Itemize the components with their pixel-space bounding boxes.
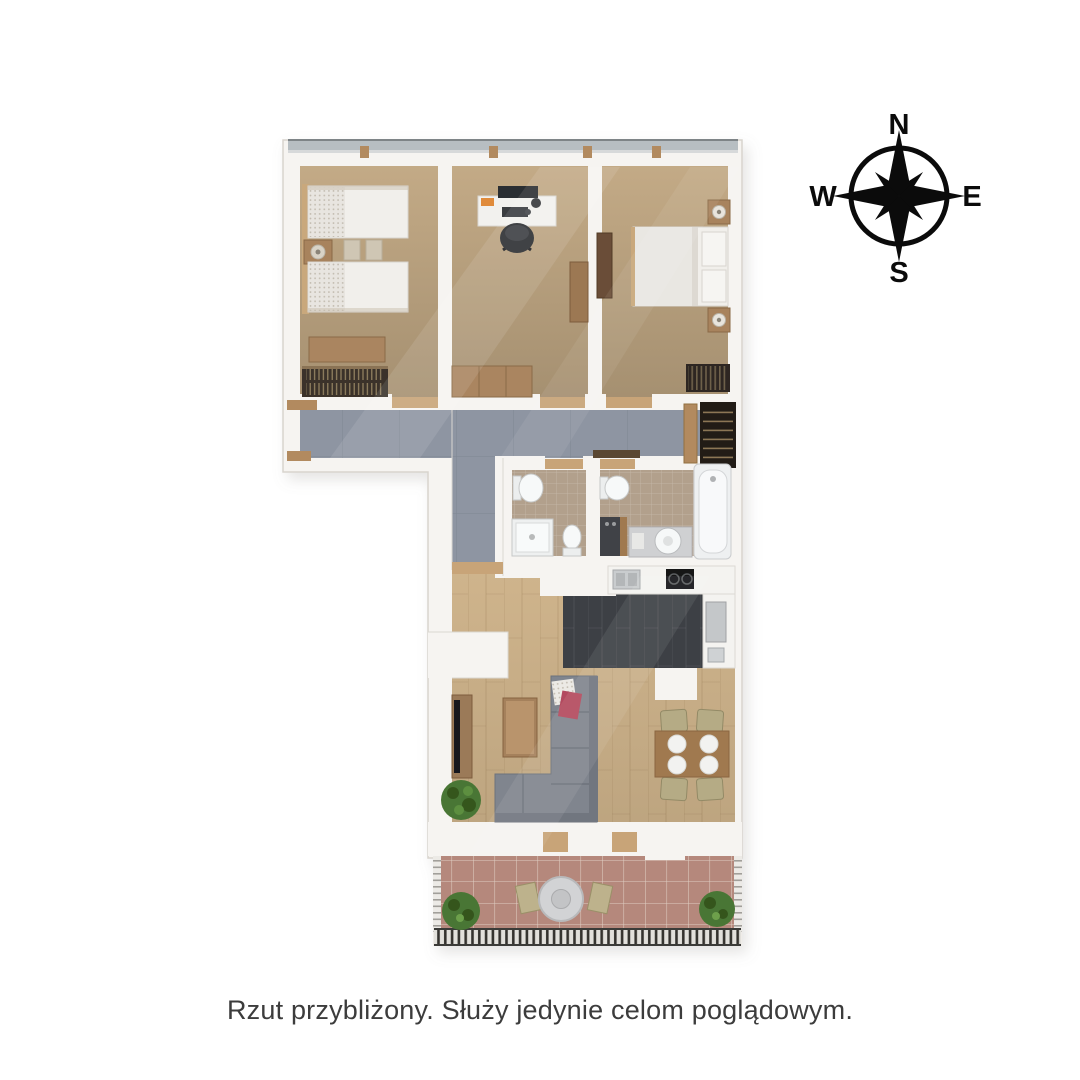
radiator bbox=[686, 364, 730, 392]
toilet bbox=[600, 476, 629, 500]
pillow bbox=[702, 270, 726, 302]
bidet bbox=[563, 525, 581, 556]
bathtub bbox=[694, 464, 731, 559]
terrace-railing bbox=[434, 928, 741, 946]
open-wardrobe bbox=[302, 366, 388, 397]
single-bed-1 bbox=[308, 186, 408, 238]
compass-label-south: S bbox=[889, 257, 908, 289]
listing-image: N E S W Rzut przybliżony. Służy jedynie … bbox=[0, 0, 1080, 1080]
nightstand-bottom bbox=[708, 308, 730, 332]
notebook bbox=[481, 198, 494, 206]
pillow bbox=[702, 232, 726, 266]
dark-vanity bbox=[600, 517, 627, 556]
nightstand bbox=[304, 240, 332, 264]
terrace-bush bbox=[699, 891, 735, 927]
disclaimer-caption: Rzut przybliżony. Służy jedynie celom po… bbox=[0, 995, 1080, 1026]
compass-label-west: W bbox=[809, 181, 837, 213]
terrace-bush bbox=[442, 892, 480, 930]
dining-table bbox=[655, 731, 729, 777]
open-door-leaf bbox=[287, 400, 317, 410]
single-bed-2 bbox=[308, 262, 408, 312]
shower-tray bbox=[512, 519, 553, 556]
wardrobe bbox=[597, 233, 612, 298]
compass-label-north: N bbox=[889, 109, 910, 141]
sideboard bbox=[570, 262, 588, 322]
shelf-over-door bbox=[593, 450, 640, 458]
compass-star bbox=[833, 130, 965, 262]
floor-plan-canvas: N E S W bbox=[0, 0, 1080, 1080]
dresser bbox=[309, 337, 385, 362]
tv-cabinet bbox=[452, 695, 472, 778]
small-appliance bbox=[708, 648, 724, 662]
closet-door-leaf bbox=[684, 404, 697, 463]
window-glass bbox=[288, 140, 738, 150]
potted-plant bbox=[441, 780, 481, 820]
compass-rose: N E S W bbox=[809, 109, 981, 289]
coffee-table bbox=[503, 698, 537, 757]
floor-plan bbox=[283, 139, 742, 946]
compass-label-east: E bbox=[962, 181, 981, 213]
built-in-appliance bbox=[706, 602, 726, 642]
hall-closet bbox=[700, 402, 736, 468]
tv bbox=[454, 700, 460, 773]
washbasin-counter bbox=[629, 527, 692, 557]
open-door-leaf bbox=[287, 451, 311, 461]
toilet bbox=[513, 474, 543, 502]
